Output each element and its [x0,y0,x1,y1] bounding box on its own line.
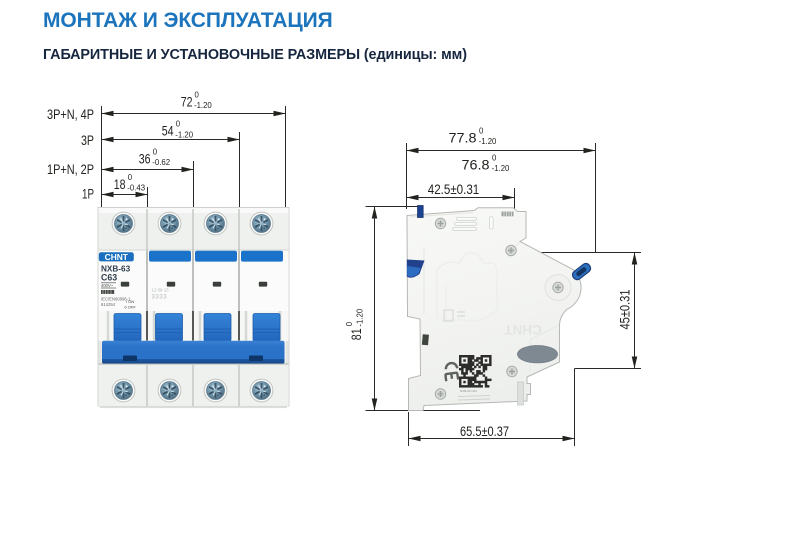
svg-text:76.8: 76.8 [462,157,490,172]
svg-text:0 OFF: 0 OFF [125,305,137,310]
svg-text:3P+N, 4P: 3P+N, 4P [47,106,94,122]
svg-text:72: 72 [181,95,193,110]
svg-text:0: 0 [479,127,484,136]
svg-text:CHNT: CHNT [105,252,129,262]
svg-text:0: 0 [153,148,158,157]
svg-text:-1.20: -1.20 [479,137,497,146]
svg-text:81: 81 [349,328,364,340]
svg-text:45±0.31: 45±0.31 [618,290,633,330]
svg-text:-0.62: -0.62 [152,158,170,167]
svg-text:-1.20: -1.20 [175,130,193,139]
svg-text:0: 0 [195,91,200,100]
svg-text:-0.43: -0.43 [127,184,145,193]
svg-text:1P+N, 2P: 1P+N, 2P [47,161,94,177]
svg-text:0: 0 [176,120,181,129]
svg-text:I ON: I ON [126,299,134,304]
svg-text:0: 0 [128,173,133,182]
svg-text:42.5±0.31: 42.5±0.31 [428,182,480,197]
svg-text:0: 0 [492,154,497,163]
svg-text:400V~: 400V~ [101,283,114,288]
svg-text:3P: 3P [81,132,94,148]
svg-text:3333: 3333 [152,295,168,301]
svg-text:614254: 614254 [101,302,116,307]
svg-text:-1.20: -1.20 [356,308,365,326]
svg-text:12 08 13: 12 08 13 [152,288,170,293]
svg-text:C63: C63 [101,273,117,283]
svg-text:36: 36 [139,151,151,166]
svg-text:0: 0 [345,321,354,326]
svg-text:1P: 1P [82,186,94,202]
svg-text:CHNT: CHNT [504,322,542,337]
svg-text:-1.20: -1.20 [194,101,212,110]
svg-text:65.5±0.37: 65.5±0.37 [460,424,509,439]
svg-text:-1.20: -1.20 [492,164,510,173]
svg-text:54: 54 [162,124,174,139]
svg-text:18: 18 [114,177,126,192]
svg-text:77.8: 77.8 [449,130,477,145]
svg-text:NXB-63 C63: NXB-63 C63 [460,389,477,393]
